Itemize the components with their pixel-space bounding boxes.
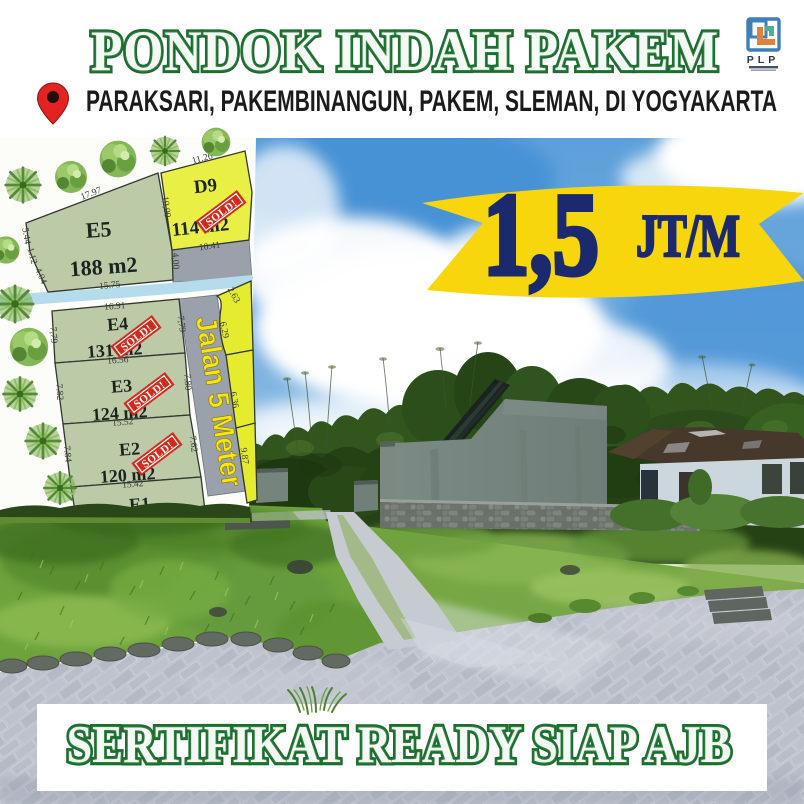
svg-text:E2: E2 (118, 438, 140, 459)
svg-text:E3: E3 (110, 375, 132, 396)
svg-text:7.62: 7.62 (187, 435, 199, 453)
svg-text:4,00: 4,00 (169, 252, 180, 270)
svg-text:JT/M: JT/M (636, 203, 740, 269)
svg-text:7,79: 7,79 (47, 326, 58, 344)
svg-text:7.80: 7.80 (181, 373, 192, 391)
svg-text:1,5: 1,5 (483, 169, 599, 300)
svg-text:SERTIFIKAT READY SIAP AJB: SERTIFIKAT READY SIAP AJB (67, 716, 732, 774)
svg-text:D9: D9 (193, 175, 218, 198)
svg-text:PARAKSARI, PAKEMBINANGUN, PAKE: PARAKSARI, PAKEMBINANGUN, PAKEM, SLEMAN,… (86, 85, 777, 118)
svg-text:188 m2: 188 m2 (69, 252, 138, 282)
svg-text:PLP: PLP (747, 54, 779, 66)
svg-text:E4: E4 (106, 313, 128, 334)
svg-text:15.42: 15.42 (122, 479, 144, 491)
svg-text:7,79: 7,79 (175, 315, 187, 333)
svg-text:16.91: 16.91 (104, 301, 126, 313)
svg-text:PONDOK INDAH PAKEM: PONDOK INDAH PAKEM (91, 20, 719, 83)
svg-text:16.56: 16.56 (107, 355, 129, 367)
svg-text:15.52: 15.52 (112, 417, 134, 429)
svg-text:7.82: 7.82 (53, 383, 64, 401)
svg-text:7.84: 7.84 (61, 445, 73, 463)
svg-text:E5: E5 (85, 216, 112, 243)
